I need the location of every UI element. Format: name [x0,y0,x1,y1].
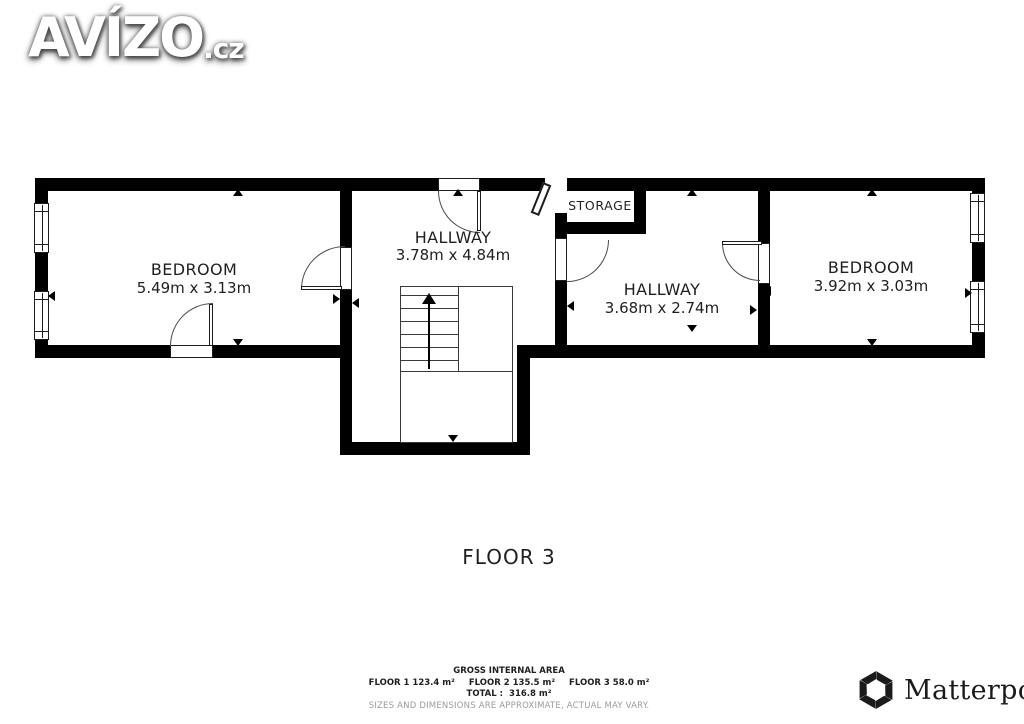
floor2-area: FLOOR 2 135.5 m² [469,678,555,688]
window-frame-line [971,201,984,202]
floor1-area: FLOOR 1 123.4 m² [369,678,455,688]
gross-internal-area-label: GROSS INTERNAL AREA [362,666,657,678]
dimension-marker-right-icon [750,305,757,315]
wall [555,280,567,358]
stair-direction-arrow [428,303,430,369]
stair-landing-line [401,371,512,372]
floor-areas-row: FLOOR 1 123.4 m²FLOOR 2 135.5 m²FLOOR 3 … [362,678,657,690]
dimension-marker-left-icon [567,301,574,311]
matterport-pinwheel-icon [855,669,897,711]
dimension-marker-down-icon [233,339,243,346]
window [970,281,985,333]
wall [517,345,985,358]
matterport-wordmark: Matterport® [904,675,1024,706]
room-name-hallway-right: HALLWAY [624,280,701,299]
dimension-marker-left-icon [352,298,359,308]
dimension-marker-right-icon [965,288,972,298]
dimension-marker-right-icon [333,294,340,304]
window [34,203,49,253]
area-summary: GROSS INTERNAL AREA FLOOR 1 123.4 m²FLOO… [362,666,657,712]
total-area-row: TOTAL :316.8 m² [362,689,657,701]
room-dimensions-hallway-middle: 3.78m x 4.84m [396,246,510,264]
staircase [400,286,513,443]
floor-title: FLOOR 3 [462,545,555,569]
dimension-marker-left-icon [48,291,55,301]
door-swing-arc [722,243,760,281]
door-leaf [301,286,342,290]
window-frame-line [971,289,984,290]
dimension-marker-up-icon [233,189,243,196]
matterport-brand-text: Matterport [904,675,1024,706]
total-value: 316.8 m² [509,689,551,699]
door-leaf [722,241,762,245]
door-swing-arc [170,303,213,346]
wall [340,442,530,455]
wall [480,178,545,191]
floorplan-image: AVÍZO.cz [0,0,1024,724]
window-frame-line [35,211,48,212]
window-frame-line [971,234,984,235]
total-label: TOTAL : [467,689,504,699]
door-leaf [477,191,481,231]
window-frame-line [35,299,48,300]
dimension-marker-down-icon [687,325,697,332]
wall [517,345,530,455]
door-swing-arc [567,240,609,282]
dimension-marker-down-icon [867,339,877,346]
door-swing-arc [438,191,480,233]
room-name-storage: STORAGE [568,198,632,213]
avizo-logo-text: AVÍZO [28,6,203,69]
stair-divider-line [458,287,459,371]
door-opening [555,238,567,281]
dimension-marker-left-icon [764,286,771,296]
window-frame-line [35,244,48,245]
window-frame-line [971,324,984,325]
dimension-marker-up-icon [687,189,697,196]
room-dimensions-bedroom-right: 3.92m x 3.03m [814,277,928,295]
disclaimer-text: SIZES AND DIMENSIONS ARE APPROXIMATE, AC… [362,701,657,713]
avizo-logo-suffix: .cz [203,32,244,65]
window-frame-line [35,331,48,332]
wall [567,178,985,191]
floor3-area: FLOOR 3 58.0 m² [569,678,649,688]
door-leaf [209,304,213,346]
avizo-logo: AVÍZO.cz [28,6,244,69]
dimension-marker-up-icon [867,189,877,196]
room-dimensions-hallway-right: 3.68m x 2.74m [605,299,719,317]
window [970,193,985,243]
storage-wall [634,191,646,234]
dimension-marker-up-icon [453,189,463,196]
room-dimensions-bedroom-left: 5.49m x 3.13m [137,279,251,297]
storage-wall [555,222,646,234]
door-opening [170,345,213,358]
room-name-bedroom-right: BEDROOM [828,258,914,277]
window [34,291,49,340]
wall [340,178,352,455]
matterport-logo: Matterport® [855,669,1024,711]
dimension-marker-down-icon [448,435,458,442]
door-swing-arc [301,246,345,289]
stair-arrow-head-icon [422,293,436,304]
room-name-bedroom-left: BEDROOM [151,260,237,279]
room-name-hallway-middle: HALLWAY [415,228,492,247]
